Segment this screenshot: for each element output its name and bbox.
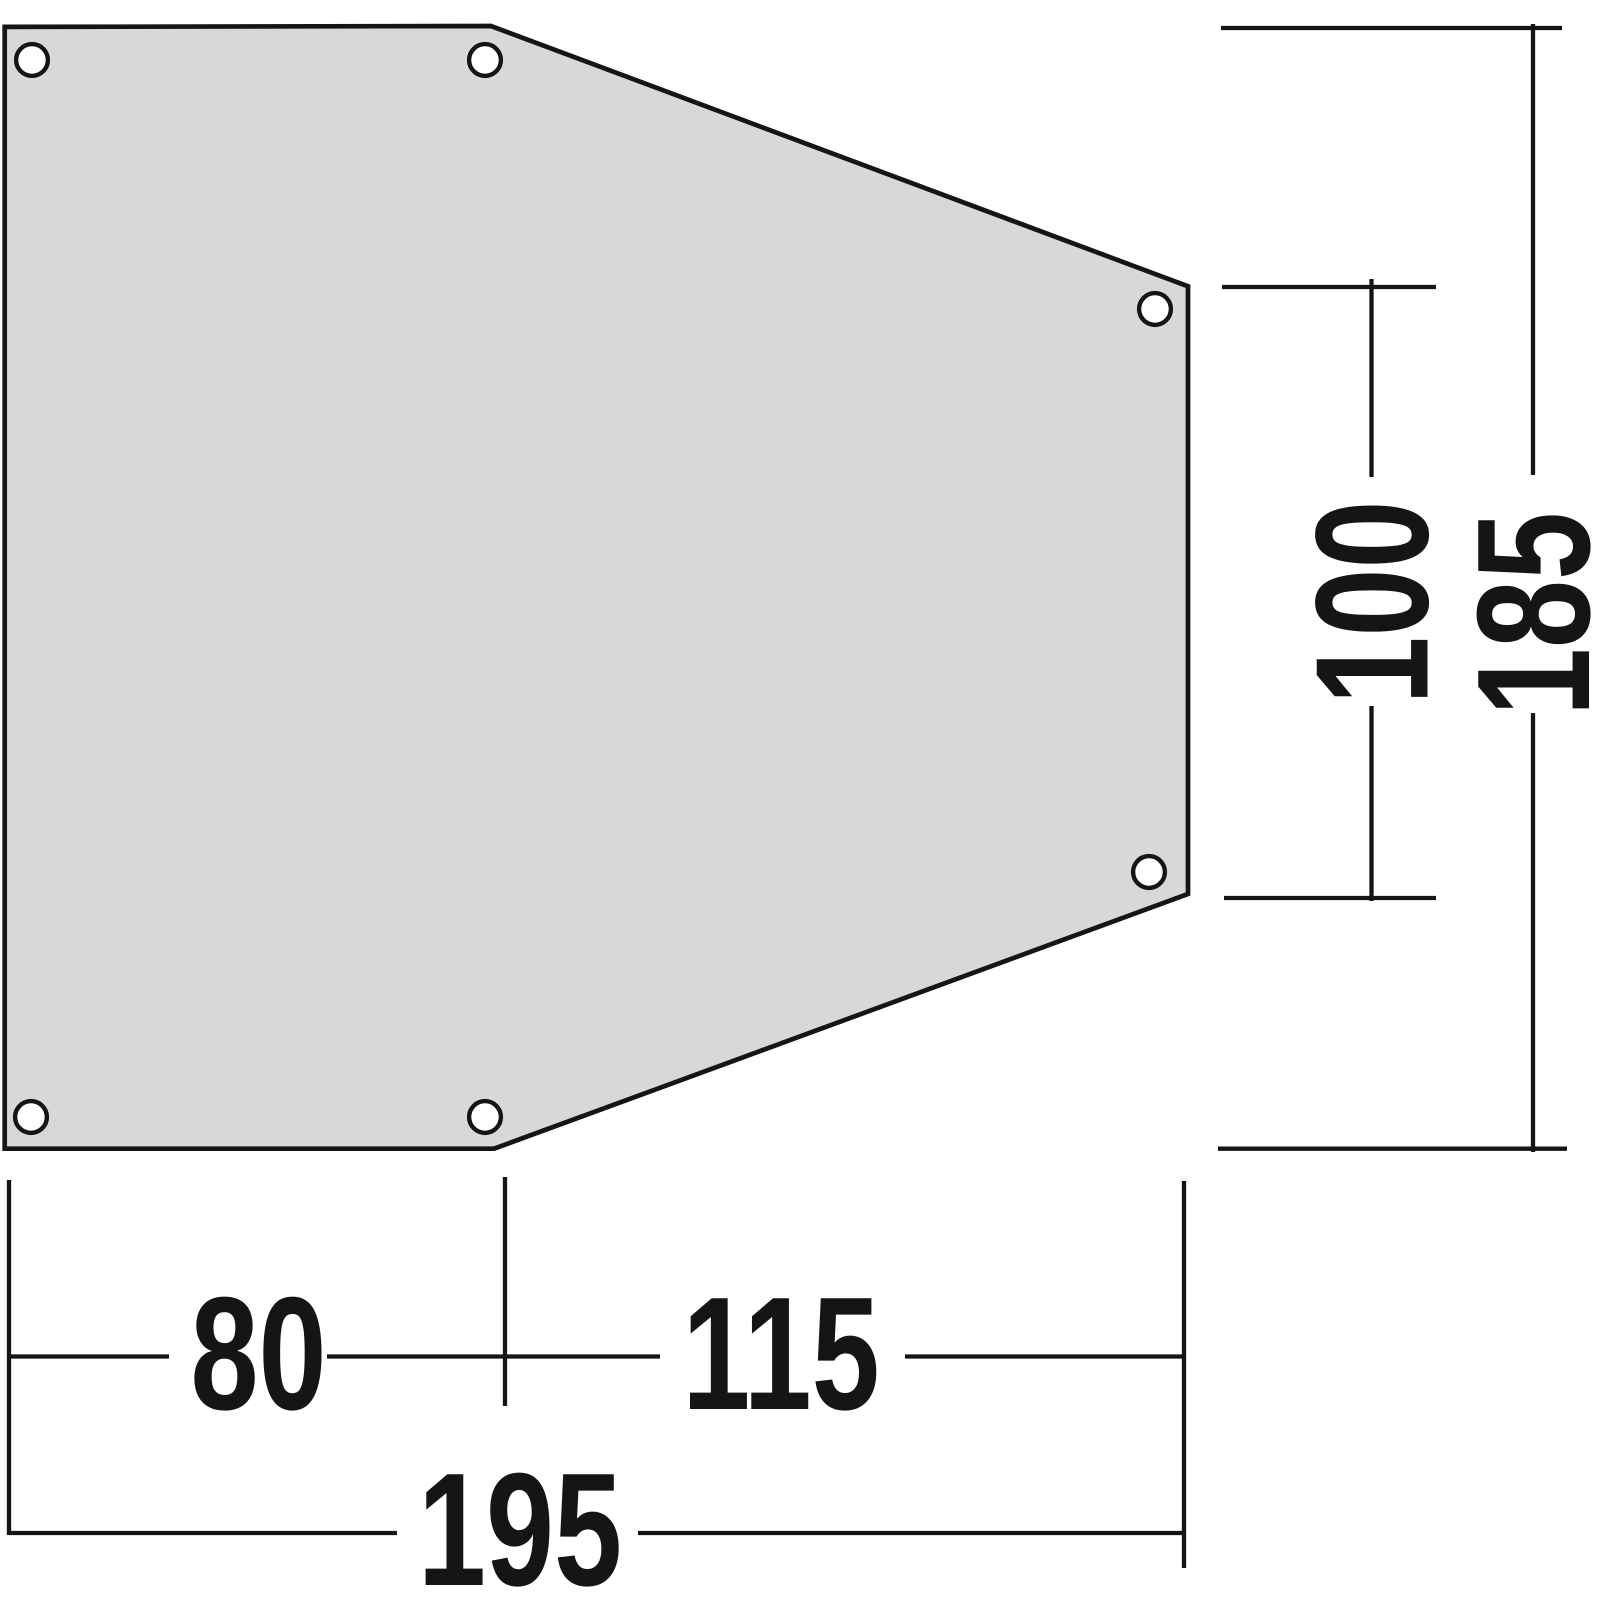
svg-text:115: 115 — [682, 1265, 879, 1444]
svg-text:100: 100 — [1283, 500, 1462, 704]
svg-text:80: 80 — [190, 1265, 326, 1444]
svg-text:185: 185 — [1445, 512, 1600, 716]
svg-text:195: 195 — [418, 1441, 622, 1600]
